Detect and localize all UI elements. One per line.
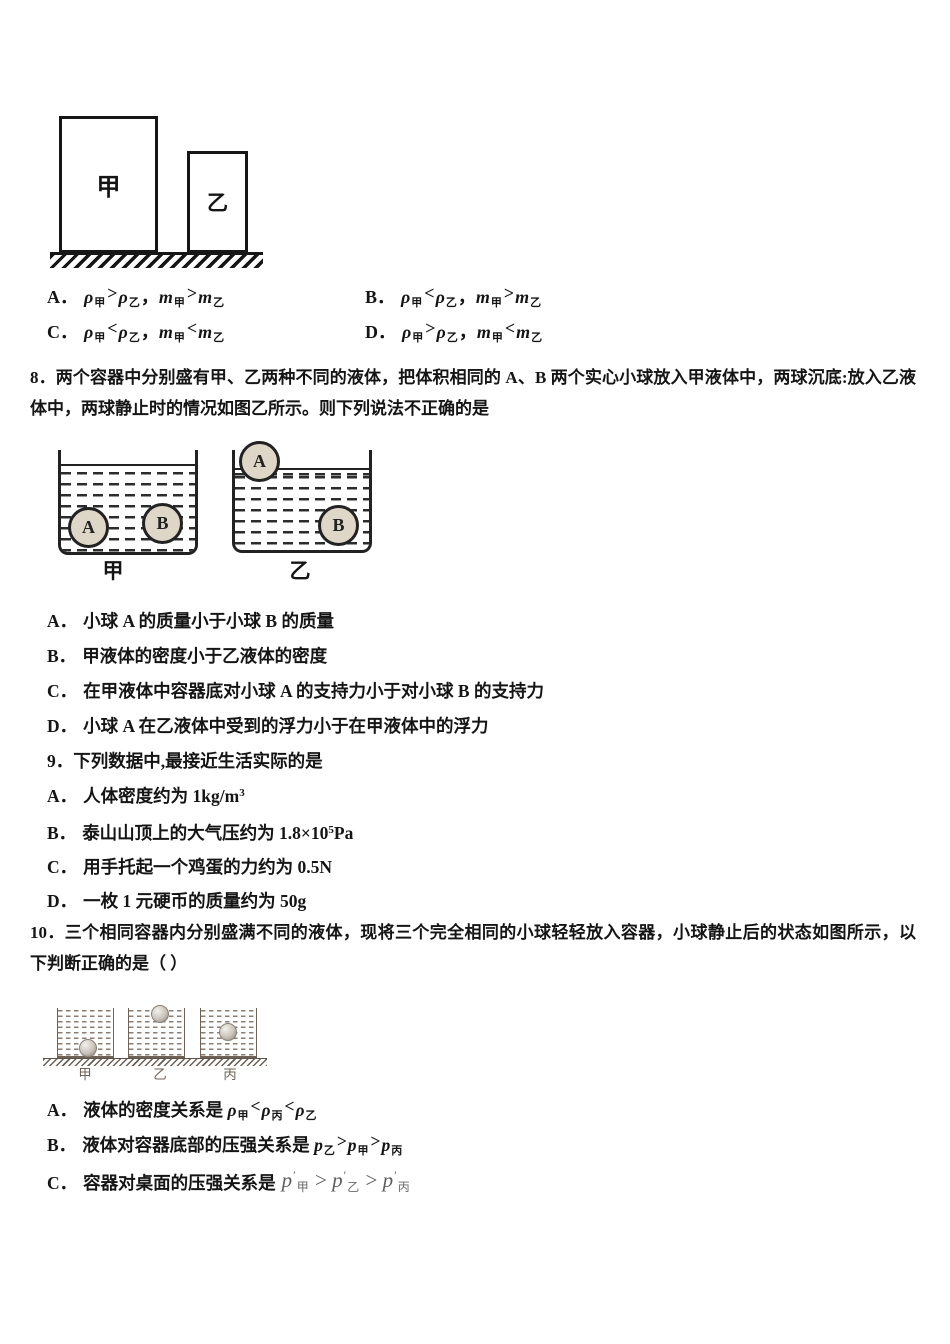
tank-bing-caption: 丙 <box>222 1063 238 1083</box>
option-text: 液体的密度关系是 <box>83 1100 227 1120</box>
option-text: 甲液体的密度小于乙液体的密度 <box>82 646 327 666</box>
option-text: 液体对容器底部的压强关系是 <box>82 1135 314 1155</box>
q10-stem-line1: 10．三个相同容器内分别盛满不同的液体，现将三个完全相同的小球轻轻放入容器，小球… <box>30 917 916 948</box>
option-text: 小球 A 的质量小于小球 B 的质量 <box>83 611 334 631</box>
option-formula: p乙>p甲>p丙 <box>314 1135 403 1155</box>
option-label: B． <box>47 646 76 666</box>
option-text: 容器对桌面的压强关系是 <box>83 1173 276 1193</box>
q8-stem-line2: 体中，两球静止时的情况如图乙所示。则下列说法不正确的是 <box>30 393 916 424</box>
block-yi: 乙 <box>187 151 248 253</box>
q9-option-d: D．一枚 1 元硬币的质量约为 50g <box>47 884 353 918</box>
beaker-yi-caption: 乙 <box>285 555 315 585</box>
q8-option-d: D．小球 A 在乙液体中受到的浮力小于在甲液体中的浮力 <box>47 709 544 744</box>
tank-yi-caption: 乙 <box>152 1063 168 1083</box>
option-label: B． <box>47 1135 76 1155</box>
ball-b-label: B <box>332 515 344 536</box>
option-equation: p′甲 > p′乙 > p′丙 <box>282 1168 411 1192</box>
beaker-jia: A B <box>58 450 198 555</box>
block-jia-label: 甲 <box>97 167 121 202</box>
sphere-suspended <box>219 1023 237 1041</box>
option-formula: ρ甲<ρ乙，m甲<m乙 <box>84 322 225 342</box>
option-label: D． <box>47 716 77 736</box>
figure-three-tanks: 甲 乙 丙 <box>42 1000 274 1084</box>
ball-b-label: B <box>156 513 168 534</box>
option-label: B． <box>47 823 76 843</box>
ground-hatch <box>50 252 263 268</box>
option-label: D． <box>47 891 77 911</box>
figure-two-beakers: A B A B 甲 乙 <box>55 443 395 585</box>
question-9-stem: 9．下列数据中,最接近生活实际的是 <box>47 748 323 773</box>
figure-two-blocks: 甲 乙 <box>50 110 266 268</box>
exam-page: 甲 乙 A．ρ甲>ρ乙，m甲>m乙 B．ρ甲<ρ乙，m甲>m乙 C．ρ甲<ρ乙，… <box>0 0 950 1344</box>
option-text: 用手托起一个鸡蛋的力约为 0.5N <box>83 857 332 877</box>
option-text: 人体密度约为 1kg/m3 <box>83 786 245 806</box>
option-label: A． <box>47 287 78 307</box>
q7-option-c: C．ρ甲<ρ乙，m甲<m乙 <box>47 320 225 344</box>
option-text: 在甲液体中容器底对小球 A 的支持力小于对小球 B 的支持力 <box>83 681 544 701</box>
option-label: B． <box>365 287 395 307</box>
option-text: 小球 A 在乙液体中受到的浮力小于在甲液体中的浮力 <box>83 716 488 736</box>
ball-a-yi: A <box>239 441 280 482</box>
q8-option-b: B．甲液体的密度小于乙液体的密度 <box>47 639 544 674</box>
option-label: C． <box>47 1173 77 1193</box>
ball-a-label: A <box>253 451 266 472</box>
option-label: C． <box>47 857 77 877</box>
sphere-floating <box>151 1005 169 1023</box>
q9-option-c: C．用手托起一个鸡蛋的力约为 0.5N <box>47 850 353 884</box>
ball-a-label: A <box>82 517 95 538</box>
option-formula: ρ甲>ρ乙，m甲>m乙 <box>84 287 225 307</box>
question-9-options: A．人体密度约为 1kg/m3 B．泰山山顶上的大气压约为 1.8×105Pa … <box>47 776 353 918</box>
question-10-stem: 10．三个相同容器内分别盛满不同的液体，现将三个完全相同的小球轻轻放入容器，小球… <box>30 917 916 979</box>
option-label: A． <box>47 611 77 631</box>
ball-a-jia: A <box>68 507 109 548</box>
q8-option-a: A．小球 A 的质量小于小球 B 的质量 <box>47 604 544 639</box>
q10-option-b: B．液体对容器底部的压强关系是 p乙>p甲>p丙 <box>47 1132 403 1158</box>
q7-option-a: A．ρ甲>ρ乙，m甲>m乙 <box>47 285 225 309</box>
q10-option-c: C．容器对桌面的压强关系是p′甲 > p′乙 > p′丙 <box>47 1170 411 1197</box>
q10-option-a: A．液体的密度关系是 ρ甲<ρ丙<ρ乙 <box>47 1097 318 1123</box>
q9-option-a: A．人体密度约为 1kg/m3 <box>47 776 353 813</box>
q8-option-c: C．在甲液体中容器底对小球 A 的支持力小于对小球 B 的支持力 <box>47 674 544 709</box>
option-label: C． <box>47 681 77 701</box>
option-text: 泰山山顶上的大气压约为 1.8×105Pa <box>82 823 353 843</box>
beaker-yi: A B <box>232 450 372 553</box>
q9-option-b: B．泰山山顶上的大气压约为 1.8×105Pa <box>47 813 353 850</box>
q10-stem-line2: 下判断正确的是（ ） <box>30 948 916 979</box>
option-label: C． <box>47 322 78 342</box>
ball-b-yi: B <box>318 505 359 546</box>
q8-stem-line1: 8．两个容器中分别盛有甲、乙两种不同的液体，把体积相同的 A、B 两个实心小球放… <box>30 362 916 393</box>
option-label: A． <box>47 1100 77 1120</box>
q7-option-d: D．ρ甲>ρ乙，m甲<m乙 <box>365 320 543 344</box>
option-formula: ρ甲<ρ丙<ρ乙 <box>228 1100 318 1120</box>
sphere-sunk <box>79 1039 97 1057</box>
option-formula: ρ甲>ρ乙，m甲<m乙 <box>402 322 543 342</box>
question-8-options: A．小球 A 的质量小于小球 B 的质量 B．甲液体的密度小于乙液体的密度 C．… <box>47 604 544 744</box>
q7-option-b: B．ρ甲<ρ乙，m甲>m乙 <box>365 285 542 309</box>
option-label: D． <box>365 322 396 342</box>
ball-b-jia: B <box>142 503 183 544</box>
tank-jia-caption: 甲 <box>77 1063 93 1083</box>
option-formula: ρ甲<ρ乙，m甲>m乙 <box>401 287 542 307</box>
block-jia: 甲 <box>59 116 158 253</box>
block-yi-label: 乙 <box>207 187 228 217</box>
question-8-stem: 8．两个容器中分别盛有甲、乙两种不同的液体，把体积相同的 A、B 两个实心小球放… <box>30 362 916 424</box>
beaker-jia-caption: 甲 <box>98 555 128 585</box>
option-text: 一枚 1 元硬币的质量约为 50g <box>83 891 306 911</box>
option-label: A． <box>47 786 77 806</box>
